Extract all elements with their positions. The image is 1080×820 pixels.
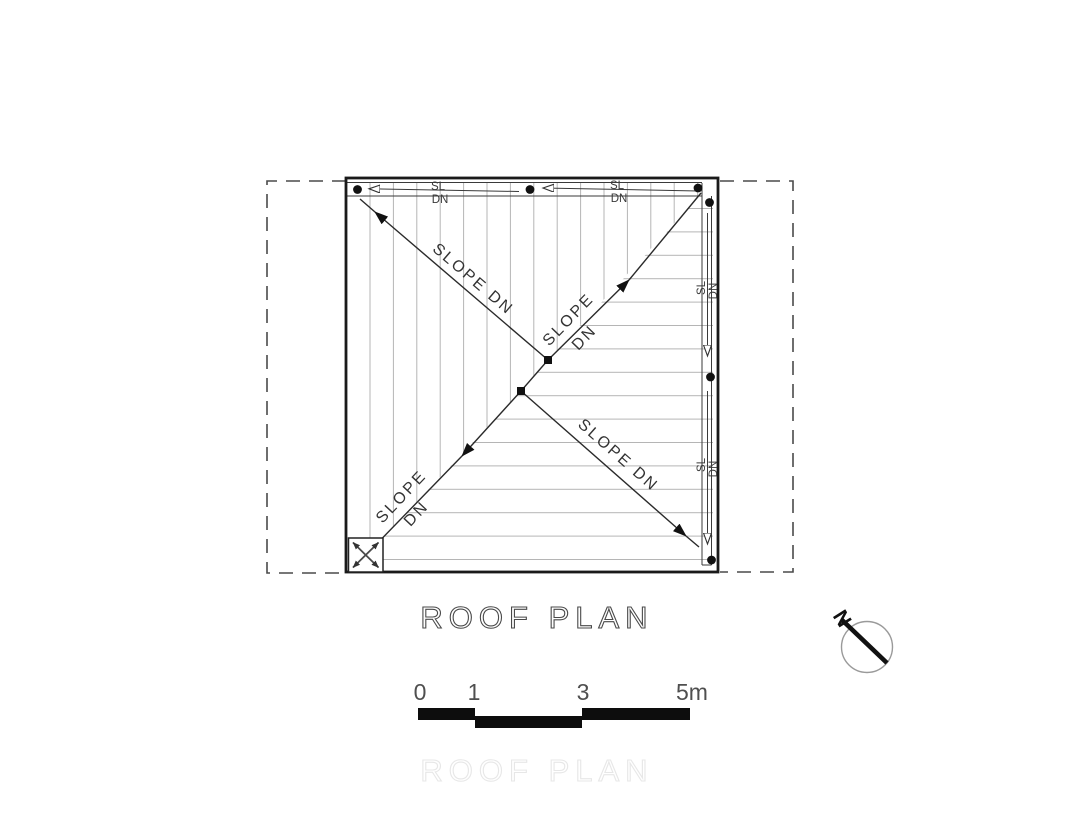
gutter-label-dn: DN — [432, 194, 449, 206]
ridge-point-upper — [544, 356, 552, 364]
roof-plan-drawing: SL DN SL DN SL DN SL DN SLOPE DN SLOPE D… — [0, 0, 1080, 820]
drain-box — [349, 538, 384, 572]
gutter-label-sl: SL — [610, 180, 625, 192]
gutter-label-dn: DN — [708, 283, 720, 300]
drawing-title: ROOF PLAN — [420, 600, 653, 635]
scale-tick-1: 1 — [468, 679, 481, 705]
drain-dot-top-middle — [526, 185, 535, 194]
ridge-point-lower — [517, 387, 525, 395]
dashed-boundary-right — [720, 181, 793, 572]
gutter-label-dn: DN — [611, 193, 628, 205]
scale-tick-0: 0 — [414, 679, 427, 705]
drain-dot-right-bottom — [707, 556, 716, 565]
gutter-label-dn: DN — [708, 461, 720, 478]
scale-bar: 0 1 3 5m — [414, 679, 708, 728]
gutter-label-sl: SL — [431, 181, 446, 193]
scale-bar-segment-1 — [418, 708, 475, 720]
scale-tick-5m: 5m — [676, 679, 708, 705]
dashed-boundary-left — [267, 181, 346, 573]
gutter-label-sl: SL — [696, 280, 708, 295]
gutter-label-sl: SL — [696, 457, 708, 472]
roof-hatching — [348, 182, 713, 572]
drain-dot-top-left — [353, 185, 362, 194]
drain-dot-right-middle — [706, 373, 715, 382]
scale-tick-3: 3 — [577, 679, 590, 705]
roof-plan-sheet: SL DN SL DN SL DN SL DN SLOPE DN SLOPE D… — [0, 0, 1080, 820]
drain-dot-right-top — [705, 198, 714, 207]
north-arrow-icon: N — [828, 606, 893, 672]
scale-bar-segment-3 — [582, 708, 690, 720]
drain-dot-top-right — [694, 184, 703, 193]
drawing-title-watermark: ROOF PLAN — [420, 753, 653, 788]
scale-bar-segment-2 — [475, 716, 582, 728]
